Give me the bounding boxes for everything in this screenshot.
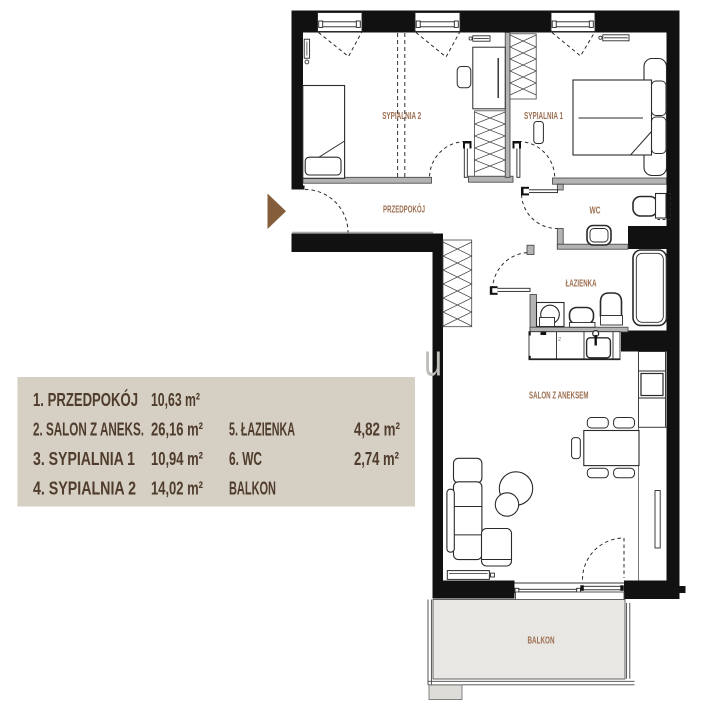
svg-text:4,82 m²: 4,82 m² [354,418,400,439]
svg-text:26,16 m²: 26,16 m² [151,418,203,439]
svg-text:WC: WC [590,206,601,217]
svg-text:4. SYPIALNIA 2: 4. SYPIALNIA 2 [33,477,136,498]
svg-text:2. SALON Z ANEKS.: 2. SALON Z ANEKS. [33,418,144,439]
svg-text:SALON Z ANEKSEM: SALON Z ANEKSEM [529,390,589,401]
svg-text:BALKON: BALKON [528,636,555,647]
svg-text:10,94 m²: 10,94 m² [151,448,203,469]
svg-text:SYPIALNIA 1: SYPIALNIA 1 [524,111,563,122]
svg-text:1. PRZEDPOKÓJ: 1. PRZEDPOKÓJ [33,389,138,410]
svg-text:PRZEDPOKÓJ: PRZEDPOKÓJ [383,204,425,216]
svg-text:10,63 m²: 10,63 m² [151,389,200,410]
svg-text:SYPIALNIA 2: SYPIALNIA 2 [382,111,421,122]
svg-text:2: 2 [558,337,561,343]
svg-text:2,74 m²: 2,74 m² [354,448,399,469]
svg-text:6. WC: 6. WC [229,448,262,469]
svg-text:5. ŁAZIENKA: 5. ŁAZIENKA [229,418,295,439]
svg-text:14,02 m²: 14,02 m² [151,477,203,498]
svg-text:ŁAZIENKA: ŁAZIENKA [566,279,597,290]
svg-text:BALKON: BALKON [229,477,276,498]
svg-text:3. SYPIALNIA 1: 3. SYPIALNIA 1 [33,448,135,469]
svg-text:u: u [424,335,442,386]
